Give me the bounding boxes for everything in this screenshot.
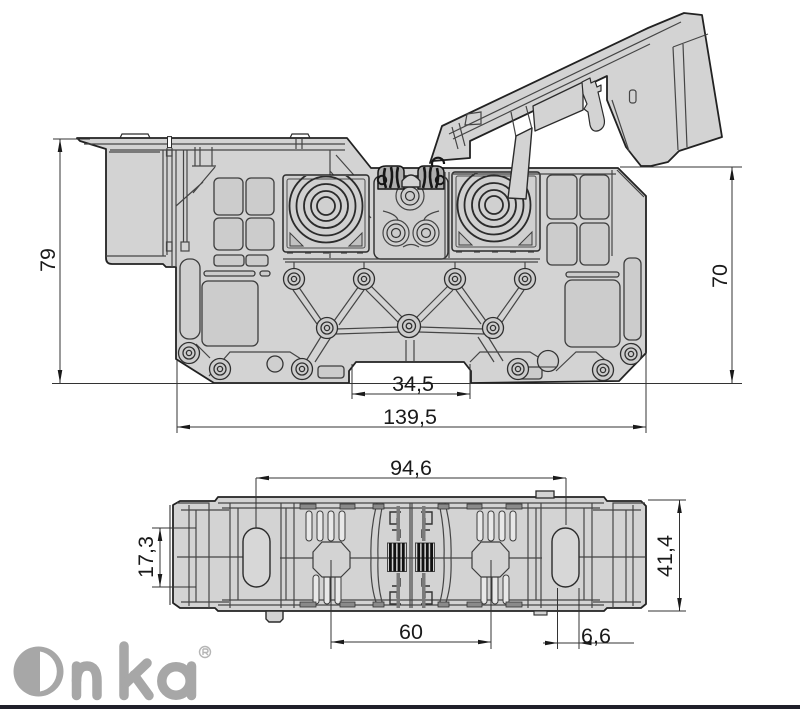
svg-text:34,5: 34,5 [392, 372, 434, 396]
svg-text:41,4: 41,4 [653, 535, 677, 577]
svg-text:60: 60 [399, 620, 423, 644]
svg-text:17,3: 17,3 [134, 536, 158, 578]
svg-text:139,5: 139,5 [383, 405, 437, 429]
svg-text:6,6: 6,6 [581, 624, 611, 648]
svg-text:70: 70 [708, 264, 732, 288]
svg-text:79: 79 [36, 248, 60, 272]
svg-text:94,6: 94,6 [390, 456, 432, 480]
